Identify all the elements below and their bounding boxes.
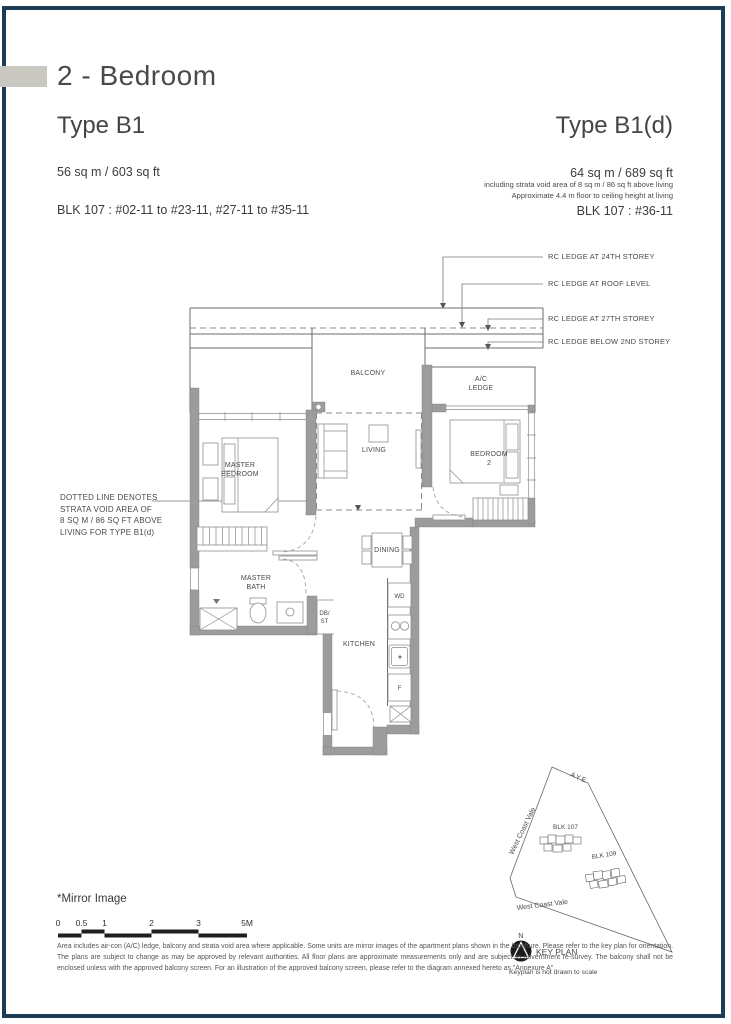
ac-ledge-label-2: LEDGE — [469, 385, 494, 392]
scale-bar: 0 0.5 1 2 3 5M — [56, 918, 253, 938]
scale-tick-5m: 5M — [241, 918, 253, 928]
key-plan-blk107-buildings — [540, 835, 581, 852]
dining-label: DINING — [374, 547, 400, 554]
brochure-page: 2 - Bedroom Type B1 56 sq m / 603 sq ft … — [0, 0, 731, 1024]
ac-ledge-label-1: A/C — [475, 376, 487, 383]
floor-plan-svg: BALCONY A/C LEDGE MASTER BEDROOM LIVING … — [0, 0, 731, 1024]
db-st-label-2: ST — [321, 618, 329, 625]
key-plan-blk107-label: BLK 107 — [553, 824, 578, 831]
key-plan-blk109-label: BLK 109 — [591, 850, 617, 861]
master-bath-label-1: MASTER — [241, 575, 271, 582]
balcony-label: BALCONY — [351, 370, 386, 377]
kitchen-label: KITCHEN — [343, 641, 375, 648]
key-plan-wcv-bottom-label: West Coast Vale — [516, 899, 568, 912]
master-bath-label-2: BATH — [247, 584, 266, 591]
kitchen-fixtures — [332, 578, 411, 730]
living-label: LIVING — [362, 447, 386, 454]
north-label: N — [518, 931, 523, 940]
bedroom2-furniture — [433, 420, 528, 520]
master-bedroom-label-1: MASTER — [225, 462, 255, 469]
fridge-label: F — [398, 685, 402, 692]
disclaimer-text: Area includes air-con (A/C) ledge, balco… — [57, 942, 673, 975]
scale-tick-2: 2 — [149, 918, 154, 928]
rc-ledge-lines — [190, 308, 543, 413]
key-plan-aye-label: AYE — [569, 771, 588, 785]
master-bedroom-furniture — [197, 438, 278, 551]
key-plan-blk109-buildings — [585, 868, 626, 890]
scale-tick-0: 0 — [56, 918, 61, 928]
wd-label: WD — [394, 593, 405, 600]
bedroom2-label-1: BEDROOM — [470, 451, 508, 458]
scale-tick-3: 3 — [196, 918, 201, 928]
scale-tick-05: 0.5 — [76, 918, 88, 928]
mirror-image-note: *Mirror Image — [57, 893, 127, 905]
scale-tick-1: 1 — [102, 918, 107, 928]
db-st-label-1: DB/ — [319, 610, 330, 617]
bedroom2-label-2: 2 — [487, 460, 491, 467]
master-bedroom-label-2: BEDROOM — [221, 471, 259, 478]
key-plan-wcv-left-label: West Coast Vale — [509, 806, 538, 855]
